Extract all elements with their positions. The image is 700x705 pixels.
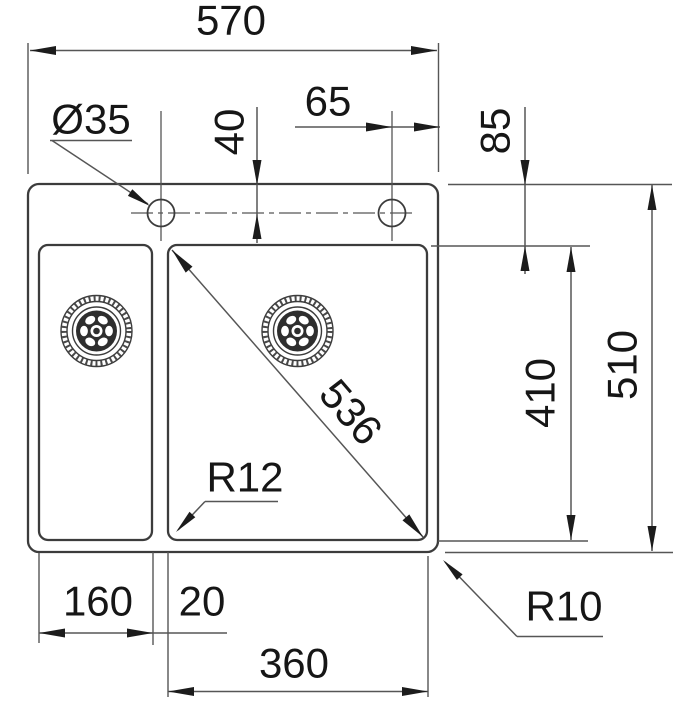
right-bowl-width-label: 360 [259,640,329,687]
overall-width-label: 570 [196,0,266,44]
arrowhead [253,160,262,185]
dim-bowl-corner-radius: R12 [176,454,284,533]
bowl-corner-radius-label: R12 [206,454,283,501]
dim-outer-corner-radius: R10 [443,560,603,637]
dim-hole-offset-top: 40 [206,107,262,243]
arrowhead [648,185,657,210]
arrowhead [567,247,576,272]
arrowhead [411,46,437,55]
dim-bowl-depth: 410 [438,247,588,541]
overall-depth-label: 510 [599,330,646,400]
arrowhead [648,526,657,551]
dim-rim-to-bowl: 85 [431,107,672,274]
arrowhead [253,214,262,239]
arrowhead [366,123,392,132]
arrowhead [168,687,194,696]
arrowhead [403,514,424,537]
hole-diameter-label: Ø35 [51,96,130,143]
left-bowl-drain [61,296,132,367]
dim-left-bowl-width: 160 20 [39,552,227,645]
arrowhead [443,560,463,580]
outer-corner-radius-label: R10 [525,583,602,630]
arrowhead [172,250,193,273]
left-bowl [39,245,152,540]
arrowhead [176,512,195,532]
bowl-gap-label: 20 [179,578,226,625]
bowl-depth-label: 410 [517,358,564,428]
hole-offset-right-label: 65 [305,78,352,125]
technical-drawing: 570 Ø35 40 65 85 536 [0,0,700,700]
arrowhead [128,189,150,206]
arrowhead [402,687,428,696]
dim-hole-diameter: Ø35 [50,96,150,207]
dim-right-bowl-width: 360 [168,552,428,697]
dim-hole-offset-right: 65 [295,78,440,132]
hole-offset-top-label: 40 [206,109,253,156]
right-bowl-drain [262,296,333,367]
sink-drawing-svg: 570 Ø35 40 65 85 536 [0,0,700,700]
left-bowl-width-label: 160 [63,578,133,625]
arrowhead [30,46,56,55]
rim-to-bowl-label: 85 [472,108,519,155]
arrowhead [567,515,576,540]
arrowhead [127,629,153,638]
arrowhead [521,160,530,185]
arrowhead [521,246,530,271]
arrowhead [414,123,440,132]
bowl-diagonal-label: 536 [310,370,391,454]
arrowhead [39,629,65,638]
